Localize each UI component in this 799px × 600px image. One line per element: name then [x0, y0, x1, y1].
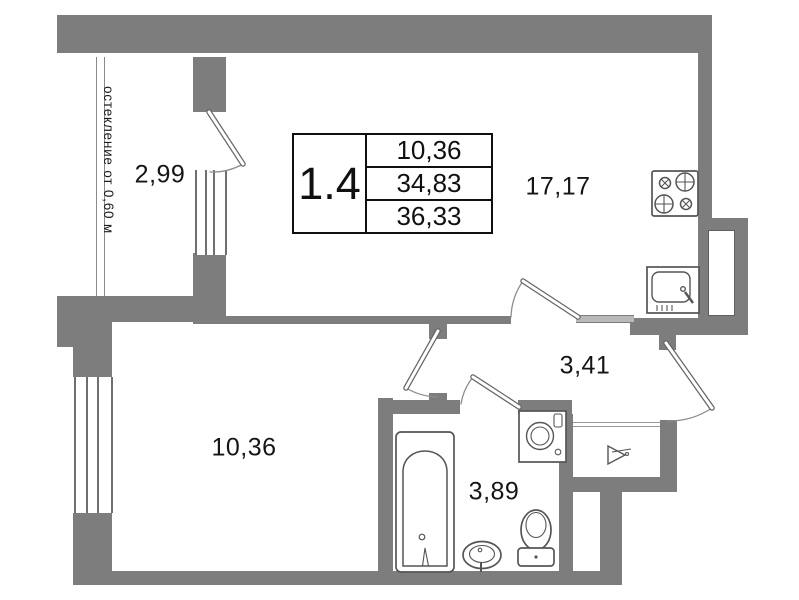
bedroom-area-label: 10,36: [211, 434, 276, 463]
toilet-icon: [518, 510, 554, 566]
unit-areas: 10,36 34,83 36,33: [367, 135, 491, 232]
apartment-area-value: 34,83: [367, 168, 491, 201]
balcony-area-label: 2,99: [135, 161, 186, 190]
kitchen-sink-icon: [647, 267, 699, 313]
bedroom-door: [406, 331, 438, 397]
floor-plan: 2,99 17,17 10,36 3,41 3,89 остекление от…: [0, 0, 799, 600]
bathtub-icon: [396, 432, 454, 572]
glazing-note: остекление от 0,60 м: [101, 86, 116, 234]
kitchen-area-label: 17,17: [525, 173, 590, 202]
bathroom-door: [461, 377, 519, 407]
total-area-value: 36,33: [367, 201, 491, 232]
hanger-icon: [608, 446, 631, 464]
unit-number: 1.4: [294, 135, 367, 232]
living-area-value: 10,36: [367, 135, 491, 168]
doors-and-fixtures-layer: [0, 0, 799, 600]
balcony-door: [209, 112, 243, 172]
washing-machine-icon: [519, 411, 566, 462]
stove-icon: [652, 171, 698, 216]
bathroom-area-label: 3,89: [469, 478, 520, 507]
livingroom-door: [511, 281, 578, 317]
unit-info-table: 1.4 10,36 34,83 36,33: [292, 133, 493, 234]
bathroom-sink-icon: [463, 542, 501, 573]
hallway-area-label: 3,41: [560, 352, 611, 381]
entrance-door: [666, 343, 712, 421]
